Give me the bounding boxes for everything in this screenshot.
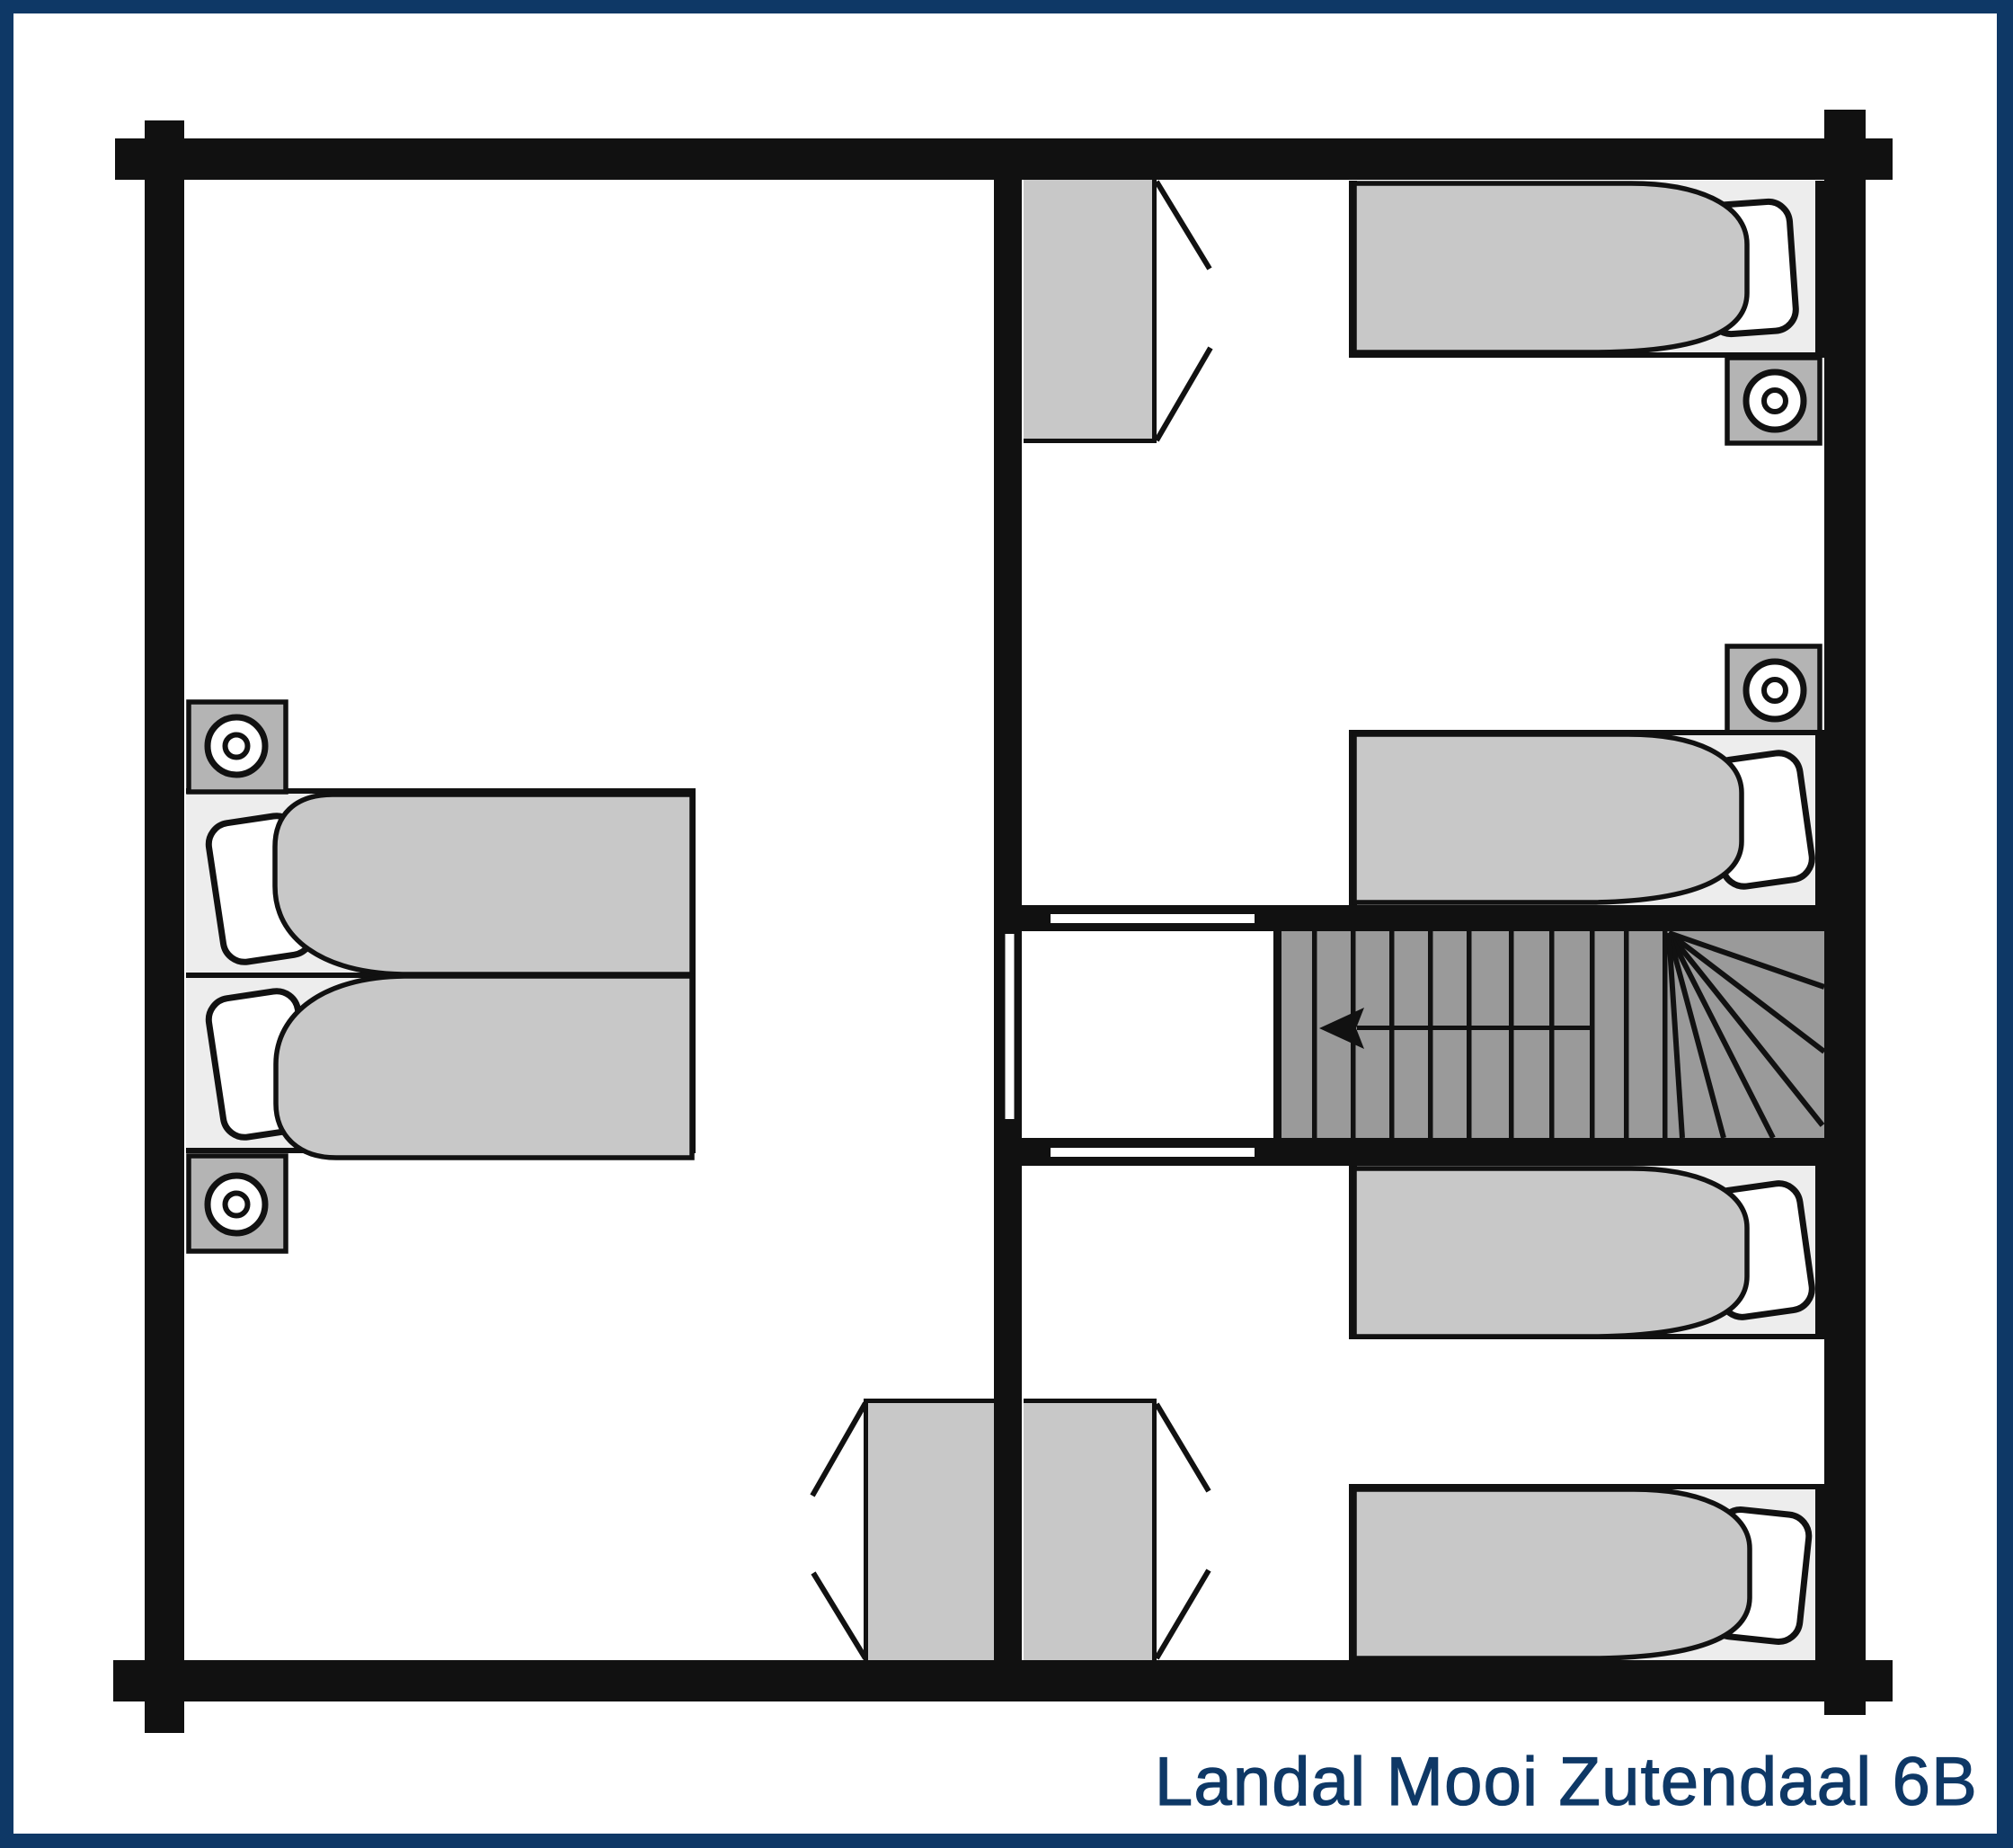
svg-text:Landal Mooi Zutendaal 6B: Landal Mooi Zutendaal 6B bbox=[1155, 1744, 1978, 1820]
